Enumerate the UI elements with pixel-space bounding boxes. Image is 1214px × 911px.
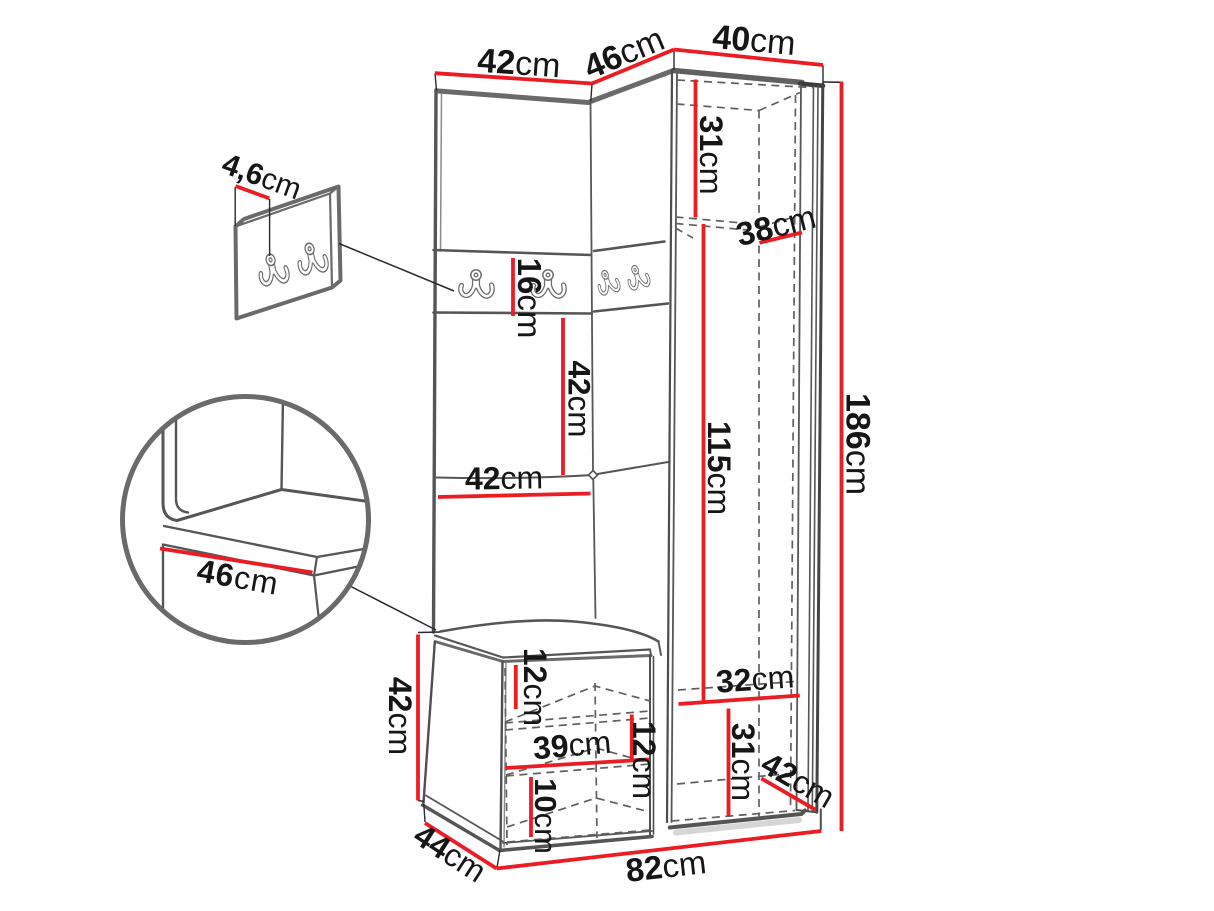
svg-text:12cm: 12cm (626, 721, 662, 799)
svg-text:42cm: 42cm (465, 459, 544, 496)
svg-text:39cm: 39cm (531, 724, 612, 767)
svg-text:12cm: 12cm (517, 648, 553, 726)
svg-text:40cm: 40cm (711, 18, 797, 63)
svg-text:115cm: 115cm (701, 421, 737, 515)
svg-text:186cm: 186cm (839, 393, 877, 495)
svg-text:42cm: 42cm (476, 42, 562, 86)
svg-text:32cm: 32cm (715, 658, 796, 699)
svg-text:31cm: 31cm (693, 115, 729, 194)
svg-text:10cm: 10cm (528, 778, 563, 854)
svg-text:16cm: 16cm (511, 258, 548, 339)
svg-text:31cm: 31cm (725, 723, 761, 801)
svg-text:42cm: 42cm (382, 677, 418, 755)
svg-text:42cm: 42cm (562, 360, 598, 437)
